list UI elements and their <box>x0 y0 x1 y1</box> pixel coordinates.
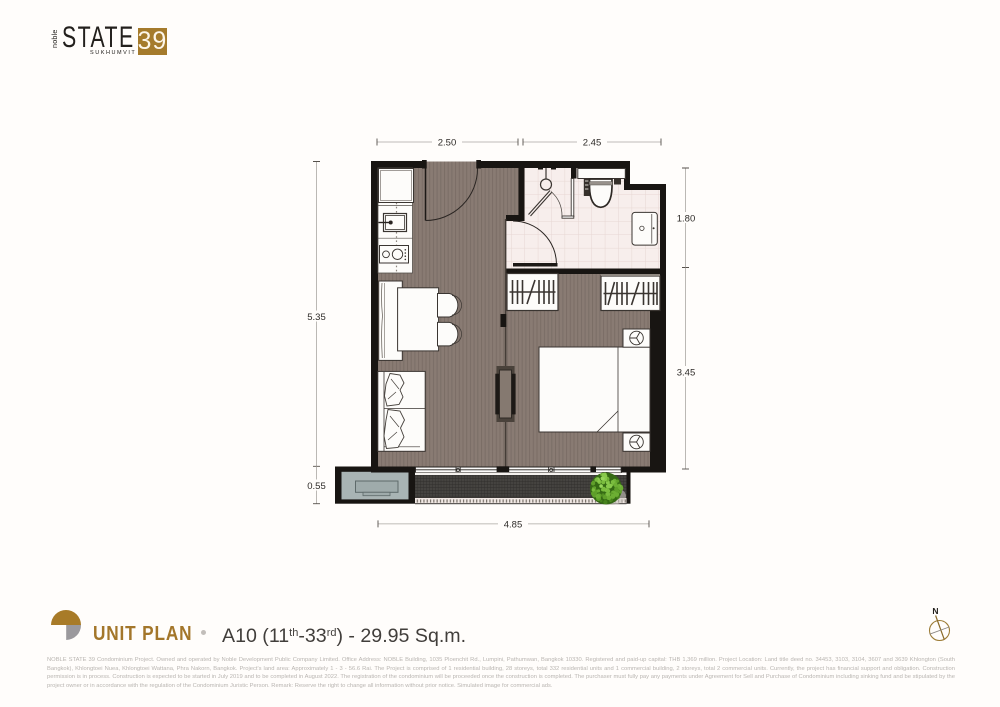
svg-text:N: N <box>932 606 938 616</box>
svg-text:0.55: 0.55 <box>307 481 326 492</box>
svg-text:1.80: 1.80 <box>677 214 696 225</box>
svg-text:5.35: 5.35 <box>307 312 326 323</box>
svg-text:2.50: 2.50 <box>438 138 457 149</box>
svg-text:4.85: 4.85 <box>504 520 523 531</box>
svg-text:3.45: 3.45 <box>677 368 696 379</box>
svg-text:2.45: 2.45 <box>583 138 602 149</box>
